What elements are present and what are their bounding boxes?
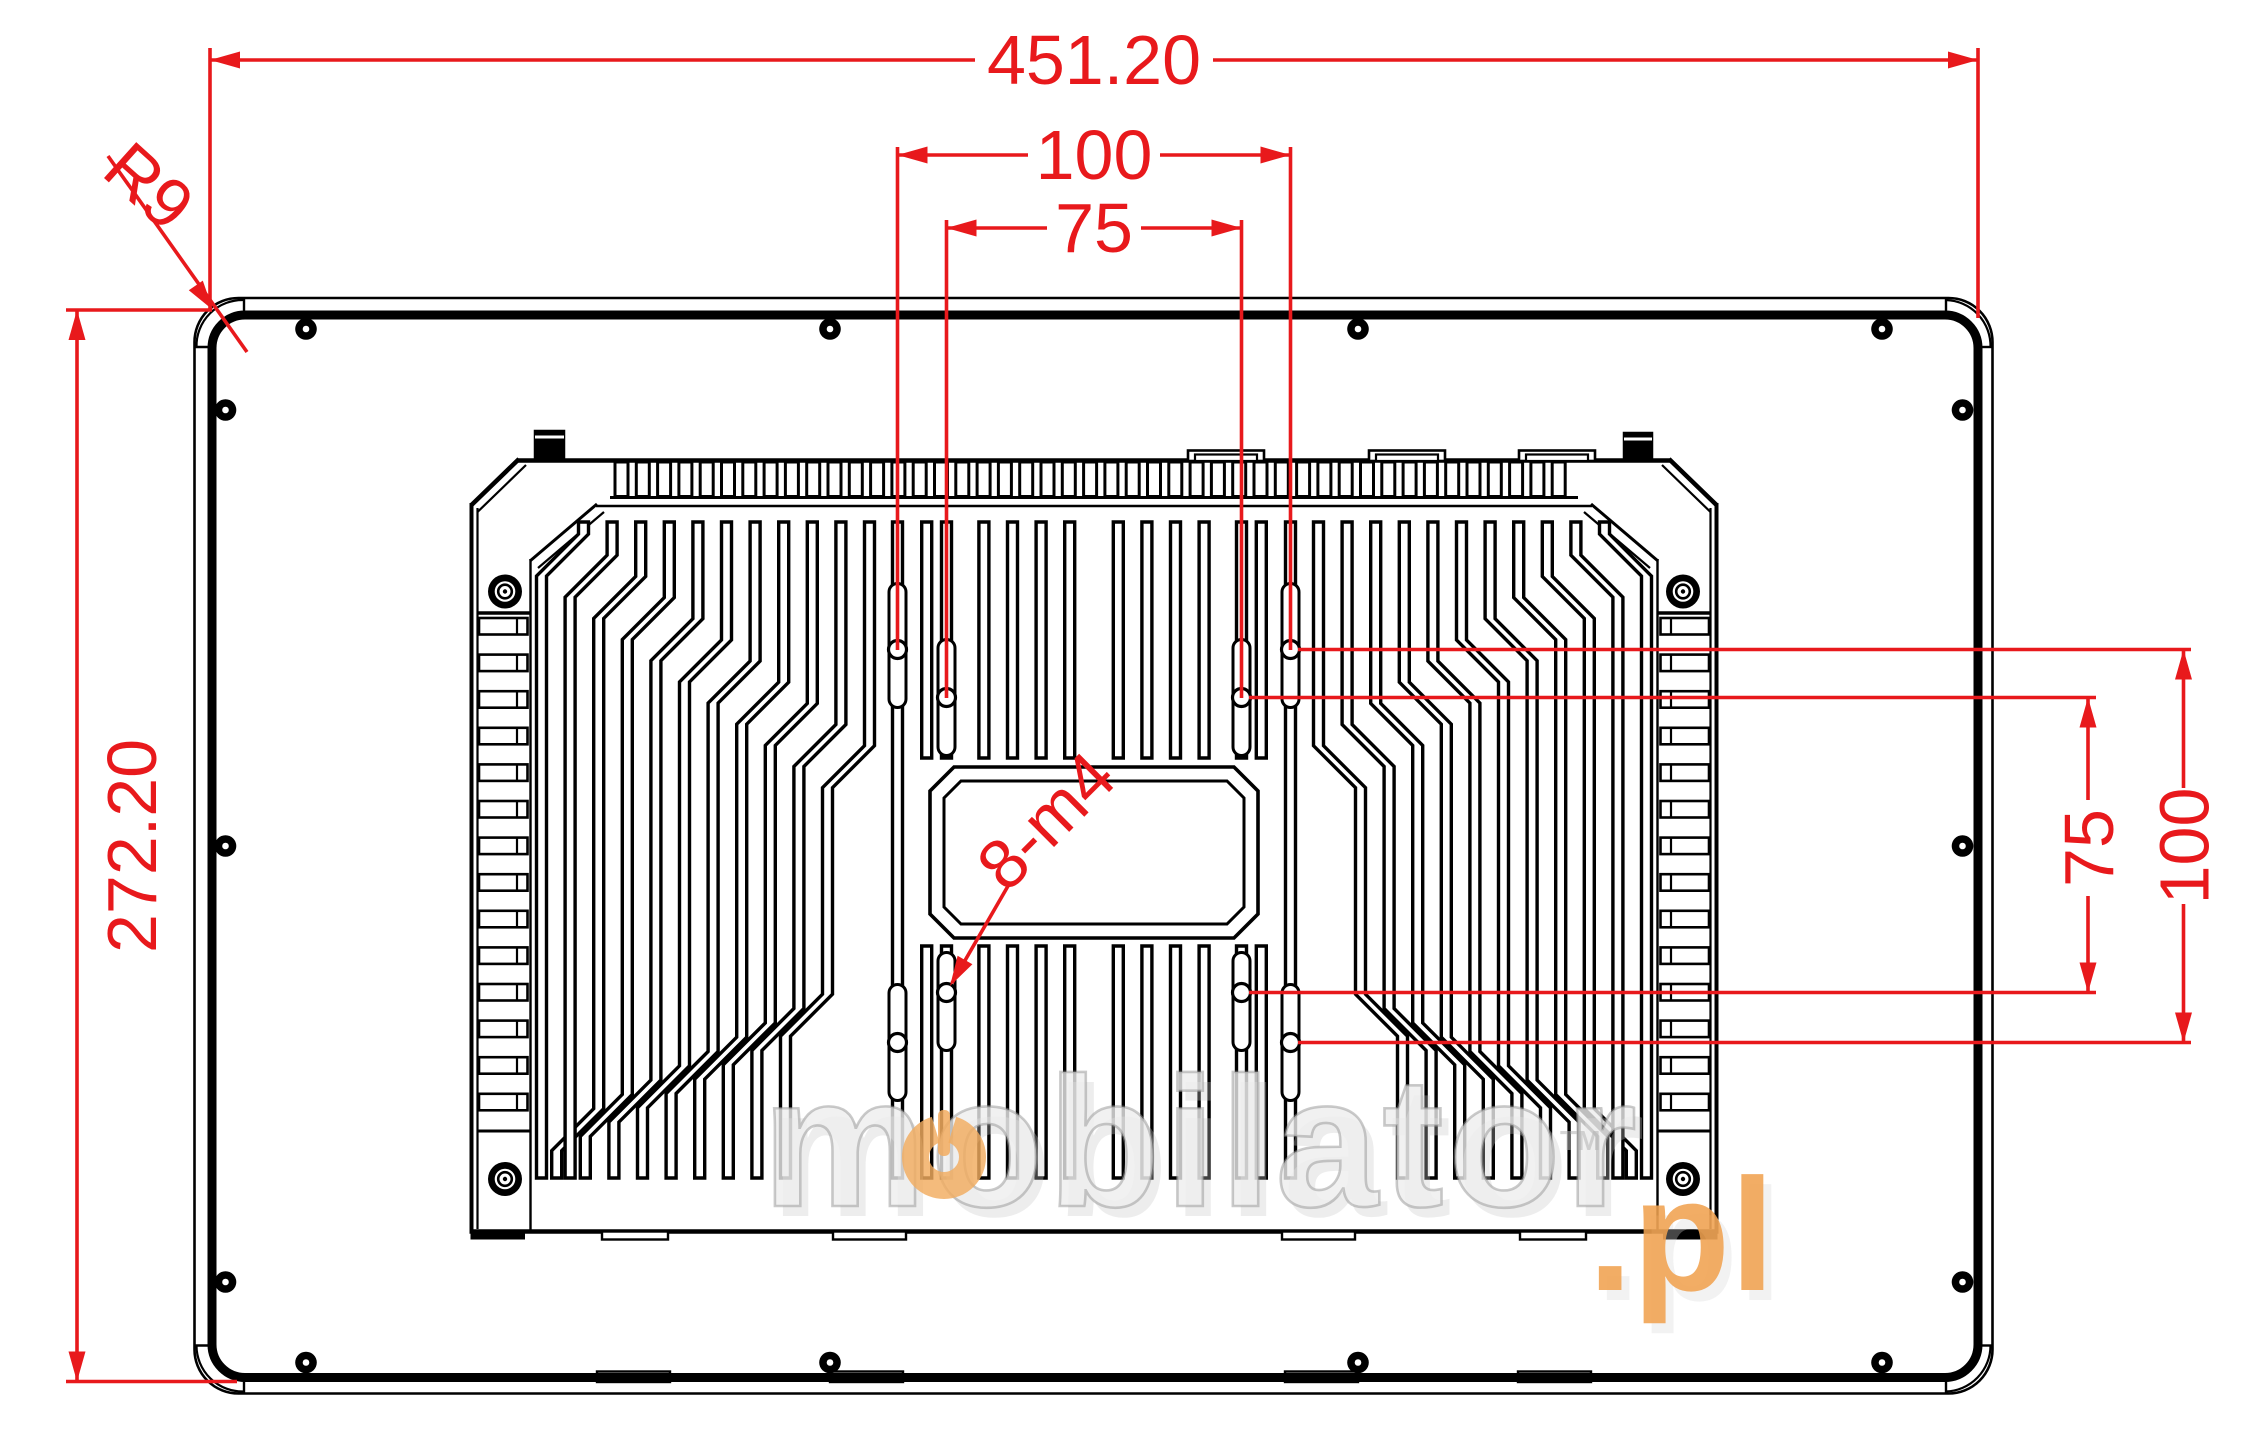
svg-text:.pl: .pl (1588, 1145, 1775, 1324)
svg-text:272.20: 272.20 (93, 739, 171, 953)
svg-text:451.20: 451.20 (987, 21, 1201, 99)
svg-text:75: 75 (2050, 809, 2128, 887)
svg-text:mobilator: mobilator (762, 1040, 1641, 1246)
svg-text:75: 75 (1055, 189, 1133, 267)
svg-text:100: 100 (1036, 116, 1153, 194)
svg-text:100: 100 (2146, 788, 2224, 905)
